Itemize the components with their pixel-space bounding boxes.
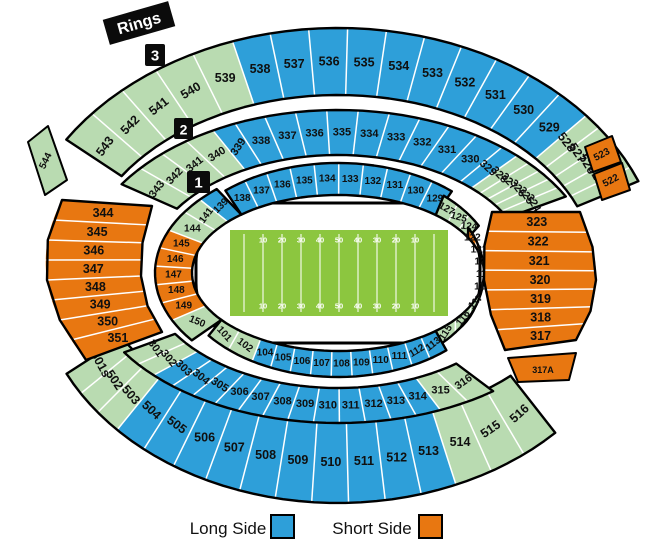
- section-label-508: 508: [255, 448, 276, 462]
- section-label-536: 536: [319, 55, 340, 69]
- playing-field: 101020203030404050504040303020201010: [230, 230, 448, 316]
- stadium-map-svg: 1010202030304040505040403030202010105435…: [0, 0, 650, 543]
- section-label-132: 132: [365, 176, 382, 187]
- section-label-331: 331: [438, 144, 456, 156]
- section-label-332: 332: [413, 137, 431, 149]
- section-label-330: 330: [461, 153, 479, 165]
- ring-marker-2-text: 2: [180, 122, 188, 138]
- ring-marker-1: 1: [187, 171, 210, 193]
- section-label-533: 533: [422, 66, 443, 80]
- section-label-136: 136: [274, 180, 291, 191]
- section-label-538: 538: [250, 62, 271, 76]
- legend-short-swatch: [419, 515, 442, 538]
- yard-number: 30: [373, 236, 381, 245]
- section-label-110: 110: [373, 355, 390, 366]
- section-label-345: 345: [87, 225, 108, 239]
- legend-long-swatch: [271, 515, 294, 538]
- section-divider: [331, 351, 332, 377]
- section-label-322: 322: [528, 235, 549, 249]
- ring-marker-3: 3: [145, 44, 165, 66]
- section-label-317A: 317A: [532, 365, 554, 375]
- section-label-313: 313: [387, 395, 405, 407]
- section-label-513: 513: [418, 444, 439, 458]
- block-east-block: 323322321320319318317: [483, 212, 596, 350]
- group-upper-left-sliver: 544: [28, 126, 67, 195]
- section-label-531: 531: [485, 88, 506, 102]
- section-label-337: 337: [278, 130, 296, 142]
- section-label-351: 351: [107, 331, 128, 345]
- yard-number: 40: [354, 236, 362, 245]
- section-label-534: 534: [388, 59, 409, 73]
- section-label-314: 314: [409, 391, 428, 403]
- yard-number: 40: [316, 236, 324, 245]
- section-label-539: 539: [215, 71, 236, 85]
- section-divider: [485, 289, 595, 290]
- yard-number: 30: [297, 302, 305, 311]
- section-label-346: 346: [83, 244, 104, 258]
- section-label-122: 122: [464, 233, 481, 244]
- section-label-138: 138: [234, 193, 251, 204]
- section-label-334: 334: [360, 128, 379, 140]
- section-label-321: 321: [529, 254, 550, 268]
- section-label-149: 149: [175, 300, 192, 311]
- section-label-306: 306: [230, 386, 248, 398]
- section-label-509: 509: [287, 453, 308, 467]
- section-label-319: 319: [530, 292, 551, 306]
- yard-number: 10: [411, 236, 419, 245]
- section-label-348: 348: [85, 280, 106, 294]
- section-label-335: 335: [333, 127, 351, 139]
- section-label-147: 147: [165, 270, 182, 281]
- section-label-111: 111: [392, 351, 408, 362]
- section-label-144: 144: [184, 223, 201, 234]
- yard-number: 20: [392, 236, 400, 245]
- ring-marker-3-text: 3: [151, 48, 159, 65]
- yard-number: 40: [354, 302, 362, 311]
- section-label-507: 507: [224, 441, 245, 455]
- section-label-338: 338: [252, 135, 270, 147]
- stadium-seating-map: 1010202030304040505040403030202010105435…: [0, 0, 650, 543]
- ring-marker-1-text: 1: [194, 175, 202, 192]
- section-label-145: 145: [173, 239, 190, 250]
- legend-long-label: Long Side: [190, 519, 267, 538]
- yard-number: 10: [259, 236, 267, 245]
- section-divider: [483, 270, 596, 271]
- legend-short-label: Short Side: [332, 519, 411, 538]
- section-label-310: 310: [319, 399, 337, 411]
- section-label-130: 130: [407, 186, 424, 197]
- yard-number: 30: [297, 236, 305, 245]
- section-label-105: 105: [275, 353, 292, 364]
- section-label-511: 511: [354, 454, 374, 468]
- section-label-537: 537: [284, 57, 305, 71]
- section-label-347: 347: [83, 262, 104, 276]
- section-label-323: 323: [526, 215, 547, 229]
- section-label-312: 312: [364, 398, 382, 410]
- section-label-344: 344: [93, 206, 114, 220]
- legend: Long Side Short Side: [190, 515, 442, 538]
- yard-number: 20: [392, 302, 400, 311]
- section-label-148: 148: [168, 285, 185, 296]
- section-label-315: 315: [431, 385, 449, 397]
- block-west-block: 344345346347348349350351: [46, 200, 162, 360]
- yard-number: 30: [373, 302, 381, 311]
- section-label-106: 106: [294, 356, 311, 367]
- yard-number: 20: [278, 236, 286, 245]
- section-label-317: 317: [530, 329, 551, 343]
- section-label-320: 320: [530, 273, 551, 287]
- section-label-311: 311: [342, 399, 360, 411]
- section-label-336: 336: [305, 127, 323, 139]
- section-label-529: 529: [539, 121, 560, 135]
- section-label-333: 333: [387, 131, 405, 143]
- yard-number: 10: [411, 302, 419, 311]
- ring-marker-2: 2: [174, 118, 193, 139]
- section-label-535: 535: [354, 55, 375, 69]
- section-label-308: 308: [273, 395, 291, 407]
- section-label-134: 134: [319, 174, 336, 185]
- section-divider: [487, 231, 588, 232]
- section-label-307: 307: [251, 391, 269, 403]
- section-label-309: 309: [296, 398, 314, 410]
- section-label-350: 350: [97, 314, 118, 328]
- section-label-532: 532: [454, 76, 475, 90]
- section-label-530: 530: [513, 103, 534, 117]
- section-label-514: 514: [450, 435, 471, 449]
- section-label-109: 109: [353, 358, 370, 369]
- yard-number: 10: [259, 302, 267, 311]
- yard-number: 20: [278, 302, 286, 311]
- yard-number: 40: [316, 302, 324, 311]
- section-label-131: 131: [387, 180, 404, 191]
- section-label-104: 104: [257, 348, 274, 359]
- yard-number: 50: [335, 302, 343, 311]
- yard-number: 50: [335, 236, 343, 245]
- section-label-510: 510: [320, 455, 341, 469]
- section-label-506: 506: [194, 431, 215, 445]
- section-label-108: 108: [333, 359, 350, 370]
- section-label-512: 512: [386, 451, 407, 465]
- rings-label: Rings: [103, 1, 176, 45]
- group-east-block-annex: 317A: [508, 353, 576, 382]
- section-label-349: 349: [90, 297, 111, 311]
- section-label-133: 133: [342, 174, 359, 185]
- section-label-318: 318: [530, 311, 551, 325]
- section-label-107: 107: [313, 358, 330, 369]
- section-label-137: 137: [253, 185, 270, 196]
- section-label-146: 146: [167, 254, 184, 265]
- section-label-135: 135: [296, 176, 313, 187]
